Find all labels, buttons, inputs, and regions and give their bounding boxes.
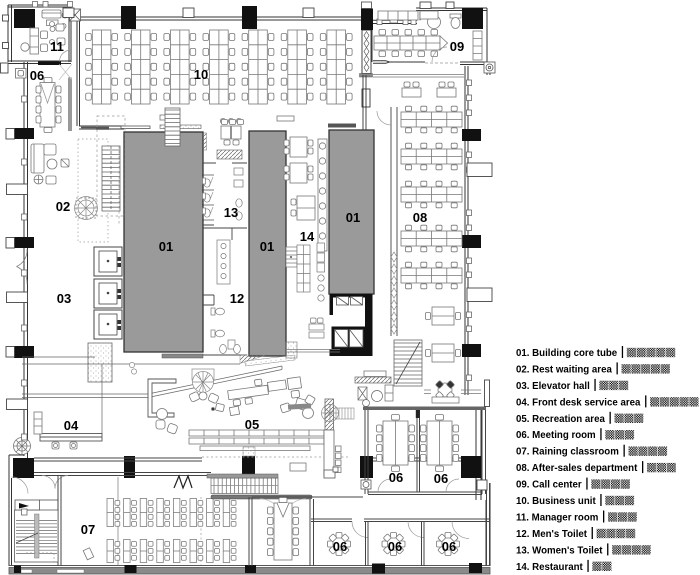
svg-text:06: 06: [388, 539, 402, 554]
svg-text:11. Manager room: 11. Manager room: [516, 513, 599, 524]
svg-text:06: 06: [30, 68, 44, 83]
svg-text:12: 12: [230, 291, 244, 306]
svg-text:03: 03: [57, 291, 71, 306]
svg-text:14: 14: [300, 229, 315, 244]
svg-text:01. Building core tube: 01. Building core tube: [516, 348, 618, 359]
svg-text:08. After-sales department: 08. After-sales department: [516, 463, 638, 474]
svg-text:14. Restaurant: 14. Restaurant: [516, 562, 584, 573]
svg-text:01: 01: [260, 239, 274, 254]
svg-text:04. Front desk service area: 04. Front desk service area: [516, 397, 641, 408]
svg-text:10: 10: [194, 67, 208, 82]
svg-text:05. Recreation area: 05. Recreation area: [516, 414, 605, 425]
svg-text:08: 08: [413, 210, 427, 225]
svg-text:01: 01: [159, 239, 173, 254]
svg-text:04: 04: [64, 418, 79, 433]
svg-text:11: 11: [50, 39, 64, 54]
svg-text:05: 05: [245, 417, 259, 432]
svg-text:07: 07: [81, 522, 95, 537]
svg-text:06: 06: [442, 539, 456, 554]
svg-text:06: 06: [434, 471, 448, 486]
svg-text:10. Business unit: 10. Business unit: [516, 496, 596, 507]
svg-text:12. Men's Toilet: 12. Men's Toilet: [516, 529, 588, 540]
svg-text:09: 09: [450, 39, 464, 54]
svg-text:06: 06: [333, 539, 347, 554]
svg-text:07. Raining classroom: 07. Raining classroom: [516, 447, 619, 458]
svg-text:02. Rest waiting area: 02. Rest waiting area: [516, 364, 612, 375]
svg-text:01: 01: [346, 210, 360, 225]
svg-text:03. Elevator hall: 03. Elevator hall: [516, 381, 590, 392]
svg-text:06. Meeting room: 06. Meeting room: [516, 430, 596, 441]
svg-text:13: 13: [224, 205, 238, 220]
svg-text:02: 02: [56, 199, 70, 214]
svg-text:13. Women's Toilet: 13. Women's Toilet: [516, 545, 603, 556]
svg-text:06: 06: [389, 470, 403, 485]
svg-text:09. Call center: 09. Call center: [516, 480, 582, 491]
